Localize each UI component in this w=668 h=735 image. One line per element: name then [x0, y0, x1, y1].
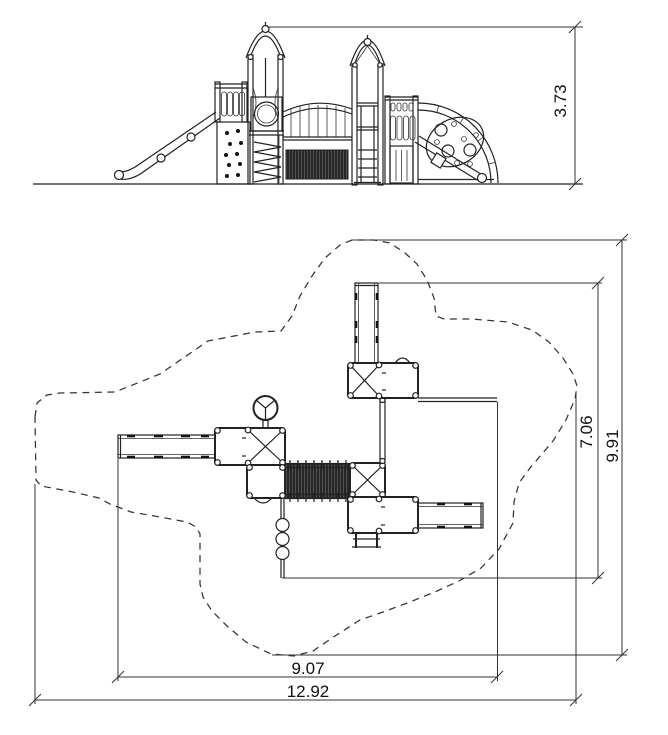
- slat-panel: [385, 96, 418, 184]
- structure-depth-label: 7.06: [577, 415, 596, 448]
- use-zone-depth-label: 9.91: [603, 429, 622, 462]
- structure-depth-dimension: 7.06: [282, 277, 604, 584]
- edge-line: [418, 398, 497, 402]
- elevation-height-label: 3.73: [551, 84, 570, 117]
- spiral-climber: [254, 135, 281, 183]
- playground-drawing: 3.73: [0, 0, 668, 735]
- cargo-net-elevation: [286, 150, 348, 179]
- use-zone-width-label: 12.92: [287, 682, 330, 701]
- spiral-climber-plan: [276, 498, 289, 578]
- use-zone-depth-dimension: 9.91: [272, 234, 628, 661]
- elevation-view: 3.73: [33, 21, 583, 190]
- plan-view: 7.06 9.91 9.07 12.92: [29, 234, 628, 706]
- net-bridge-plan: [285, 460, 350, 502]
- structure-width-dimension: 9.07: [112, 402, 503, 683]
- deck-top: [348, 358, 419, 399]
- window-panel: [215, 82, 247, 122]
- right-ramp: [418, 503, 483, 528]
- arch-bridge: [283, 103, 352, 140]
- deck-center: [350, 463, 386, 498]
- structure-width-label: 9.07: [291, 659, 324, 678]
- top-ramp: [355, 283, 378, 363]
- arch-tower-right: [350, 35, 385, 185]
- deck-main: [215, 427, 286, 466]
- access-ladder-plan: [352, 533, 381, 548]
- deck-lower-left: [247, 465, 286, 503]
- porthole-panel: [249, 97, 284, 135]
- deck-bottom-right: [348, 496, 419, 534]
- use-zone-outline: [35, 240, 577, 656]
- curved-climber: [415, 103, 498, 183]
- steering-wheel: [254, 396, 278, 428]
- deck-connector: [380, 398, 385, 464]
- rock-wall: [217, 122, 250, 184]
- drawing-sheet: 3.73: [0, 0, 668, 735]
- left-ramp: [118, 435, 215, 458]
- slide: [115, 112, 221, 180]
- tower-ladder: [354, 106, 381, 183]
